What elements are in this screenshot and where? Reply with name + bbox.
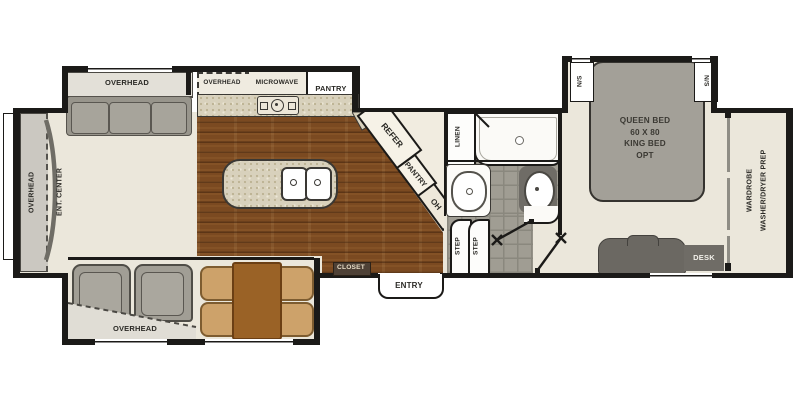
dinette-chair (200, 302, 236, 337)
wardrobe-door-track (727, 116, 730, 172)
bath-wall-corner (524, 206, 560, 224)
bed-label-line: QUEEN BED (620, 116, 670, 125)
bed-label-line: KING BED (624, 139, 666, 148)
washer-dryer-prep-label: WASHER/DRYER PREP (757, 115, 771, 265)
wall-segment (352, 108, 566, 113)
nightstand-right-label: N/S (694, 62, 716, 100)
linen-label: LINEN (451, 118, 467, 156)
dinette-chair (278, 302, 314, 337)
wardrobe-label: WARDROBE (743, 125, 757, 255)
wall-segment (562, 56, 568, 113)
wall-segment (440, 273, 786, 278)
wall-segment (13, 108, 20, 278)
wardrobe-door-track (727, 236, 730, 266)
step-2-label: STEP (469, 224, 485, 268)
window-marker (88, 66, 172, 72)
shower-drain (515, 136, 524, 145)
pantry-label: PANTRY (306, 82, 356, 96)
window-marker (205, 339, 293, 345)
wall-segment (13, 108, 63, 113)
wall-segment (314, 258, 320, 345)
window-marker (95, 339, 167, 345)
sofa (66, 96, 192, 136)
theater-seat-right (134, 264, 193, 322)
bedroom-bench (598, 238, 686, 274)
bed-label-line: 60 X 80 (630, 128, 660, 137)
wall-segment (446, 160, 558, 162)
island-sink-left (281, 167, 308, 201)
dinette-overhead-label: OVERHEAD (85, 322, 185, 336)
step-1-label: STEP (451, 224, 467, 268)
sofa-cushion (151, 102, 187, 134)
bed-label-block: QUEEN BED 60 X 80 KING BED OPT (595, 113, 695, 163)
sofa-overhead-label: OVERHEAD (77, 76, 177, 90)
wall-segment (186, 68, 191, 95)
bath-sink (451, 171, 487, 212)
wall-segment (711, 108, 793, 113)
sofa-cushion (71, 102, 109, 134)
wall-segment (558, 112, 562, 235)
island-sink-right (305, 167, 332, 201)
nightstand-left-label: N/S (570, 62, 592, 100)
cooktop (257, 96, 299, 115)
entry-label: ENTRY (378, 277, 440, 295)
wall-segment (443, 112, 446, 216)
kitchen-overhead-label: OVERHEAD (197, 75, 247, 91)
dinette-chair (200, 266, 236, 301)
wall-segment (62, 66, 68, 113)
sofa-cushion (109, 102, 151, 134)
rv-floorplan: REFER PANTRY OH OVERHEAD ENT. CENTER OVE… (0, 0, 800, 400)
dinette-table (232, 262, 282, 340)
wardrobe-door-track (727, 178, 730, 230)
microwave-label: MICROWAVE (247, 75, 307, 91)
closet-label: CLOSET (333, 263, 369, 274)
desk-label: DESK (684, 251, 724, 265)
slide-threshold-line (68, 257, 314, 260)
front-overhead-label: OVERHEAD (25, 148, 39, 236)
window-marker (650, 273, 712, 278)
wall-segment (13, 273, 65, 278)
ent-center-label: ENT. CENTER (53, 146, 67, 238)
wall-segment (62, 273, 68, 345)
bed-label-line: OPT (636, 151, 653, 160)
dinette-chair (278, 266, 314, 301)
shower (474, 112, 562, 166)
wall-segment (786, 108, 793, 278)
